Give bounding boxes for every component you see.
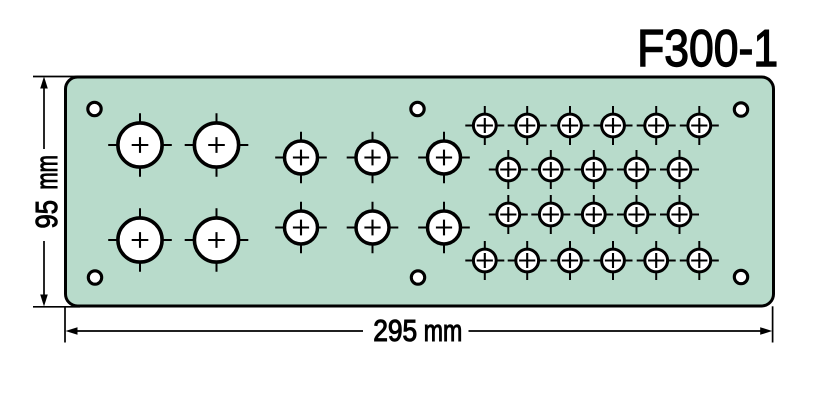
- svg-text:F300-1: F300-1: [637, 20, 778, 78]
- svg-text:295: 295: [373, 314, 417, 348]
- svg-text:95: 95: [30, 200, 64, 229]
- svg-text:mm: mm: [424, 314, 463, 348]
- svg-text:mm: mm: [30, 155, 64, 190]
